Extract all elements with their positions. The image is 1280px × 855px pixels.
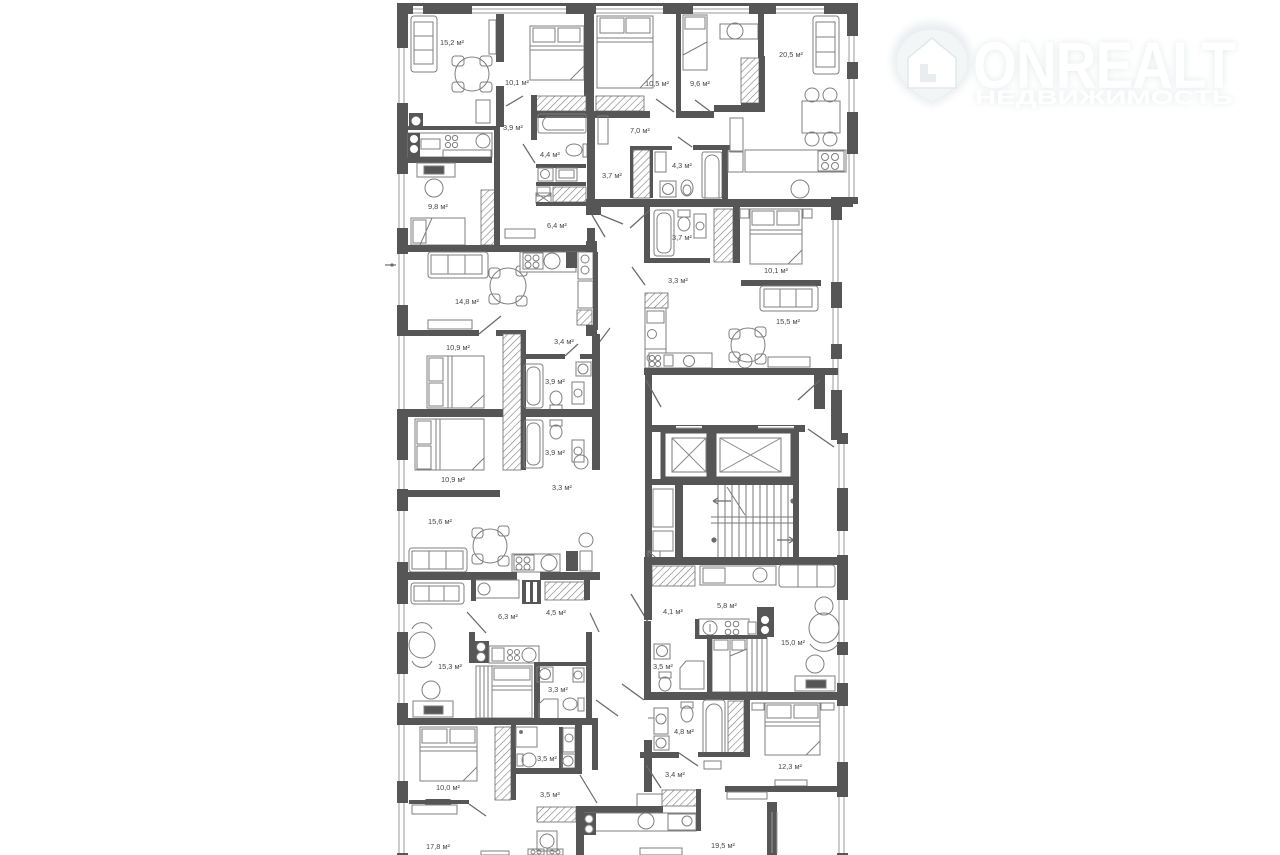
svg-text:3,9 м²: 3,9 м²	[503, 123, 523, 132]
svg-text:10,1 м²: 10,1 м²	[764, 266, 789, 275]
svg-text:3,5 м²: 3,5 м²	[540, 790, 560, 799]
svg-text:10,1 м²: 10,1 м²	[505, 78, 530, 87]
svg-text:19,5 м²: 19,5 м²	[711, 841, 736, 850]
svg-text:10,0 м²: 10,0 м²	[436, 783, 461, 792]
svg-text:14,8 м²: 14,8 м²	[455, 297, 480, 306]
svg-text:НЕДВИЖИМОСТЬ: НЕДВИЖИМОСТЬ	[975, 88, 1233, 109]
svg-text:4,4 м²: 4,4 м²	[540, 150, 560, 159]
svg-text:15,6 м²: 15,6 м²	[428, 517, 453, 526]
svg-text:17,8 м²: 17,8 м²	[426, 842, 451, 851]
svg-text:10,9 м²: 10,9 м²	[441, 475, 466, 484]
svg-text:9,6 м²: 9,6 м²	[690, 79, 710, 88]
svg-text:15,2 м²: 15,2 м²	[440, 38, 465, 47]
svg-text:6,4 м²: 6,4 м²	[547, 221, 567, 230]
svg-text:4,1 м²: 4,1 м²	[663, 607, 683, 616]
svg-text:7,0 м²: 7,0 м²	[630, 126, 650, 135]
svg-text:3,4 м²: 3,4 м²	[554, 337, 574, 346]
svg-text:20,5 м²: 20,5 м²	[779, 50, 804, 59]
svg-text:10,9 м²: 10,9 м²	[446, 343, 471, 352]
svg-text:3,3 м²: 3,3 м²	[548, 685, 568, 694]
svg-text:3,9 м²: 3,9 м²	[545, 377, 565, 386]
svg-text:3,3 м²: 3,3 м²	[668, 276, 688, 285]
svg-text:15,0 м²: 15,0 м²	[781, 638, 806, 647]
svg-text:4,8 м²: 4,8 м²	[674, 727, 694, 736]
svg-text:3,4 м²: 3,4 м²	[665, 770, 685, 779]
svg-text:3,5 м²: 3,5 м²	[653, 662, 673, 671]
svg-text:9,8 м²: 9,8 м²	[428, 202, 448, 211]
svg-text:3,5 м²: 3,5 м²	[537, 754, 557, 763]
svg-text:15,5 м²: 15,5 м²	[776, 317, 801, 326]
svg-text:3,7 м²: 3,7 м²	[672, 233, 692, 242]
svg-text:10,5 м²: 10,5 м²	[645, 79, 670, 88]
svg-text:3,9 м²: 3,9 м²	[545, 448, 565, 457]
svg-text:5,8 м²: 5,8 м²	[717, 601, 737, 610]
svg-text:3,7 м²: 3,7 м²	[602, 171, 622, 180]
svg-text:6,3 м²: 6,3 м²	[498, 612, 518, 621]
svg-text:15,3 м²: 15,3 м²	[438, 662, 463, 671]
svg-text:4,3 м²: 4,3 м²	[672, 161, 692, 170]
svg-text:12,3 м²: 12,3 м²	[778, 762, 803, 771]
svg-text:4,5 м²: 4,5 м²	[546, 608, 566, 617]
svg-text:3,3 м²: 3,3 м²	[552, 483, 572, 492]
